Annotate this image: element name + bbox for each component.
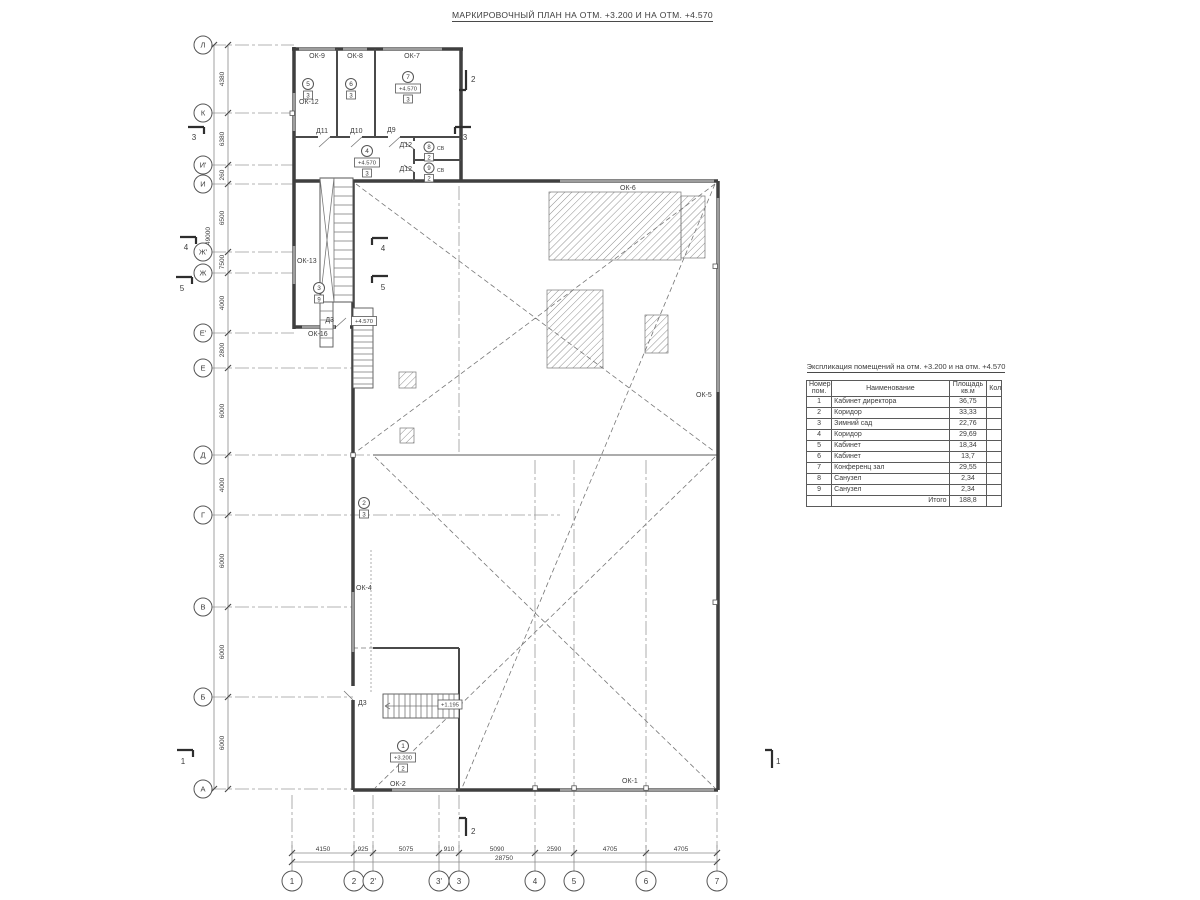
door-label-d11: Д11 xyxy=(316,128,328,135)
column-marker xyxy=(644,786,649,791)
window-label-ok1: ОК-1 xyxy=(622,778,638,785)
vent-mark: СВ xyxy=(437,168,445,174)
total-label: Итого xyxy=(832,495,949,506)
room-name: Коридор xyxy=(832,429,949,440)
table-total-row: Итого188,8 xyxy=(807,495,1002,506)
axis-lines-left-mid xyxy=(212,368,353,789)
room-no: 6 xyxy=(807,451,832,462)
window-label-ok8: ОК-8 xyxy=(347,53,363,60)
room-area: 18,34 xyxy=(949,440,987,451)
room-name: Кабинет директора xyxy=(832,396,949,407)
room-number: 1 xyxy=(401,743,405,750)
dim-left-11: 6000 xyxy=(219,735,226,750)
room-no: 2 xyxy=(807,407,832,418)
column-marker xyxy=(713,600,718,605)
dim-left-2: 260 xyxy=(219,169,226,180)
table-header-row: Номер пом. Наименование Площадь кв.м Кол… xyxy=(807,381,1002,397)
column-marker xyxy=(351,453,356,458)
door-label-d12: Д12 xyxy=(399,142,412,149)
dim-left-5: 4000 xyxy=(219,295,226,310)
dim-left-0: 4380 xyxy=(219,71,226,86)
col-header-name: Наименование xyxy=(832,381,949,397)
room-area: 29,69 xyxy=(949,429,987,440)
dim-bottom-5: 2590 xyxy=(547,846,562,853)
window-label-ok4: ОК-4 xyxy=(356,585,372,592)
table-row: 7Конференц зал29,55 xyxy=(807,462,1002,473)
table-row: 9Санузел2,34 xyxy=(807,484,1002,495)
table-row: 4Коридор29,69 xyxy=(807,429,1002,440)
room-no: 3 xyxy=(807,418,832,429)
section-mark-1-left xyxy=(177,750,193,757)
window-label-ok7: ОК-7 xyxy=(404,53,420,60)
window-label-ok12: ОК-12 xyxy=(299,99,319,106)
axis-label: И' xyxy=(200,161,207,170)
dim-left-1: 6380 xyxy=(219,131,226,146)
total-value: 188,8 xyxy=(949,495,987,506)
section-mark-2-bottom xyxy=(459,818,466,836)
room-no: 1 xyxy=(807,396,832,407)
axis-label: 6 xyxy=(644,877,649,886)
dim-left-8: 4000 xyxy=(219,477,226,492)
dim-left-3: 6500 xyxy=(219,210,226,225)
hatch-area xyxy=(645,315,668,353)
section-number: 1 xyxy=(776,757,781,766)
room-number: 5 xyxy=(306,81,310,88)
dim-left-total: 49000 xyxy=(205,227,212,245)
axis-label: Ж xyxy=(200,269,207,278)
room-no: 4 xyxy=(807,429,832,440)
room-area: 13,7 xyxy=(949,451,987,462)
col-header-count: Кол. xyxy=(987,381,1002,397)
dim-bottom-3: 910 xyxy=(444,846,455,853)
room-name: Санузел xyxy=(832,473,949,484)
axis-label: В xyxy=(200,603,205,612)
axis-label: 2 xyxy=(352,877,357,886)
window-label-ok6: ОК-6 xyxy=(620,185,636,192)
section-number: 5 xyxy=(381,283,386,292)
axis-label: 5 xyxy=(572,877,577,886)
elevation-value: +4.570 xyxy=(358,161,376,167)
room-number: 2 xyxy=(362,500,366,507)
section-number: 2 xyxy=(471,75,476,84)
room-count xyxy=(987,396,1002,407)
axis-lines xyxy=(212,45,717,848)
elevation-value: +4.570 xyxy=(399,87,417,93)
room-no: 7 xyxy=(807,462,832,473)
room-area: 22,76 xyxy=(949,418,987,429)
axis-label: И xyxy=(200,180,205,189)
door-label-d3: Д3 xyxy=(325,317,334,324)
axis-label: Е' xyxy=(200,329,207,338)
dim-bottom-7: 4705 xyxy=(674,846,689,853)
vent-mark: СВ xyxy=(437,146,445,152)
window-label-ok5: ОК-5 xyxy=(696,392,712,399)
dim-left-7: 6000 xyxy=(219,403,226,418)
room-count xyxy=(987,418,1002,429)
section-number: 3 xyxy=(463,133,468,142)
axis-label: К xyxy=(201,109,206,118)
hatch-column xyxy=(399,372,416,388)
room-area: 2,34 xyxy=(949,484,987,495)
total-empty xyxy=(807,495,832,506)
axis-label: 7 xyxy=(715,877,720,886)
drawing-sheet: МАРКИРОВОЧНЫЙ ПЛАН НА ОТМ. +3.200 И НА О… xyxy=(0,0,1200,900)
explication-title-text: Экспликация помещений на отм. +3.200 и н… xyxy=(807,362,1006,373)
section-number: 3 xyxy=(192,133,197,142)
axis-lines-bottom-stubs xyxy=(292,795,717,848)
dim-left-4: 7500 xyxy=(219,254,226,269)
table-row: 2Коридор33,33 xyxy=(807,407,1002,418)
room-number: 7 xyxy=(406,74,410,81)
axis-label: 1 xyxy=(290,877,295,886)
window-label-ok16: ОК-16 xyxy=(308,331,328,338)
dim-left-10: 6000 xyxy=(219,644,226,659)
col-axis-bubbles: 1 2 2' 3' 3 4 5 6 7 xyxy=(282,871,727,891)
dim-bottom-2: 5075 xyxy=(399,846,414,853)
room-number: 4 xyxy=(365,148,369,155)
room-count xyxy=(987,462,1002,473)
room-name: Коридор xyxy=(832,407,949,418)
dim-bottom-0: 4150 xyxy=(316,846,331,853)
section-mark-5-left xyxy=(176,277,192,284)
hatch-area xyxy=(681,196,705,258)
axis-label: Г xyxy=(201,511,205,520)
hatch-area xyxy=(549,192,681,260)
column-marker xyxy=(572,786,577,791)
room-count xyxy=(987,473,1002,484)
room-number: 6 xyxy=(349,81,353,88)
column-marker xyxy=(290,111,295,116)
door-label-d10: Д10 xyxy=(350,128,363,135)
elevation-value: +1.195 xyxy=(441,703,459,709)
dim-bottom-1: 925 xyxy=(358,846,369,853)
table-row: 6Кабинет13,7 xyxy=(807,451,1002,462)
room-no: 9 xyxy=(807,484,832,495)
section-number: 1 xyxy=(181,757,186,766)
table-row: 3Зимний сад22,76 xyxy=(807,418,1002,429)
table-row: 5Кабинет18,34 xyxy=(807,440,1002,451)
room-count xyxy=(987,484,1002,495)
elevation-value: +3.200 xyxy=(394,756,412,762)
room-area: 29,55 xyxy=(949,462,987,473)
section-mark-1-right xyxy=(765,750,772,768)
room-count xyxy=(987,429,1002,440)
axis-label: Б xyxy=(201,693,206,702)
total-count xyxy=(987,495,1002,506)
col-header-area: Площадь кв.м xyxy=(949,381,987,397)
axis-label: А xyxy=(200,785,205,794)
window-label-ok9: ОК-9 xyxy=(309,53,325,60)
dim-bottom-4: 5090 xyxy=(490,846,505,853)
table-row: 1Кабинет директора36,75 xyxy=(807,396,1002,407)
dim-left-6: 2800 xyxy=(219,342,226,357)
dim-bottom-6: 4705 xyxy=(603,846,618,853)
section-number: 4 xyxy=(184,243,189,252)
axis-lines-left-short xyxy=(212,45,294,333)
axis-label: Л xyxy=(201,41,206,50)
axis-label: 4 xyxy=(533,877,538,886)
room-name: Санузел xyxy=(832,484,949,495)
section-mark-5-right xyxy=(372,276,388,283)
axis-lines-bottom-long xyxy=(459,186,646,848)
row-axis-bubbles: Л К И' И Ж' Ж Е' Е Д Г В Б А xyxy=(194,36,212,798)
axis-label: Д xyxy=(200,451,205,460)
axis-label: 3' xyxy=(436,877,442,886)
explication: Экспликация помещений на отм. +3.200 и н… xyxy=(806,362,1006,507)
section-number: 5 xyxy=(180,284,185,293)
room-name: Кабинет xyxy=(832,451,949,462)
room-name: Кабинет xyxy=(832,440,949,451)
room-count xyxy=(987,440,1002,451)
elevation-value: +4.570 xyxy=(355,319,373,325)
floor-plan-canvas: 4380 6380 260 6500 7500 4000 2800 6000 4… xyxy=(0,0,1200,900)
stairs: +1.195 xyxy=(320,178,462,718)
door-label-d3: Д3 xyxy=(358,700,367,707)
room-area: 36,75 xyxy=(949,396,987,407)
plan-title: МАРКИРОВОЧНЫЙ ПЛАН НА ОТМ. +3.200 И НА О… xyxy=(452,10,713,22)
room-name: Конференц зал xyxy=(832,462,949,473)
door-label-d12: Д12 xyxy=(399,166,412,173)
room-number: 3 xyxy=(317,285,321,292)
axis-label: 2' xyxy=(370,877,376,886)
hatch-column xyxy=(400,428,414,443)
section-marks: 2 2 3 3 4 4 5 5 1 1 xyxy=(176,70,781,836)
table-row: 8Санузел2,34 xyxy=(807,473,1002,484)
section-number: 2 xyxy=(471,827,476,836)
stair-landing-outline xyxy=(320,302,333,347)
axis-label: 3 xyxy=(457,877,462,886)
room-count xyxy=(987,407,1002,418)
axis-label: Ж' xyxy=(199,248,208,257)
room-area: 33,33 xyxy=(949,407,987,418)
section-number: 4 xyxy=(381,244,386,253)
col-header-number: Номер пом. xyxy=(807,381,832,397)
axis-label: Е xyxy=(200,364,205,373)
door-label-d9: Д9 xyxy=(387,127,396,134)
explication-table: Номер пом. Наименование Площадь кв.м Кол… xyxy=(806,380,1002,507)
room-area: 2,34 xyxy=(949,473,987,484)
axis-lines-left-long xyxy=(212,455,560,515)
window-label-ok2: ОК-2 xyxy=(390,781,406,788)
room-count xyxy=(987,451,1002,462)
room-no: 8 xyxy=(807,473,832,484)
main-stair-outline xyxy=(320,178,353,302)
room-no: 5 xyxy=(807,440,832,451)
room-name: Зимний сад xyxy=(832,418,949,429)
dim-bottom-total: 28750 xyxy=(495,855,513,862)
dim-left-9: 6000 xyxy=(219,553,226,568)
column-marker xyxy=(533,786,538,791)
room-tags: 5 3 6 3 7 +4.570 3 4 +4.570 3 8 2 СВ xyxy=(303,72,445,773)
hatch-area xyxy=(547,290,603,368)
window-label-ok13: ОК-13 xyxy=(297,258,317,265)
explication-title: Экспликация помещений на отм. +3.200 и н… xyxy=(806,362,1006,371)
column-marker xyxy=(713,264,718,269)
